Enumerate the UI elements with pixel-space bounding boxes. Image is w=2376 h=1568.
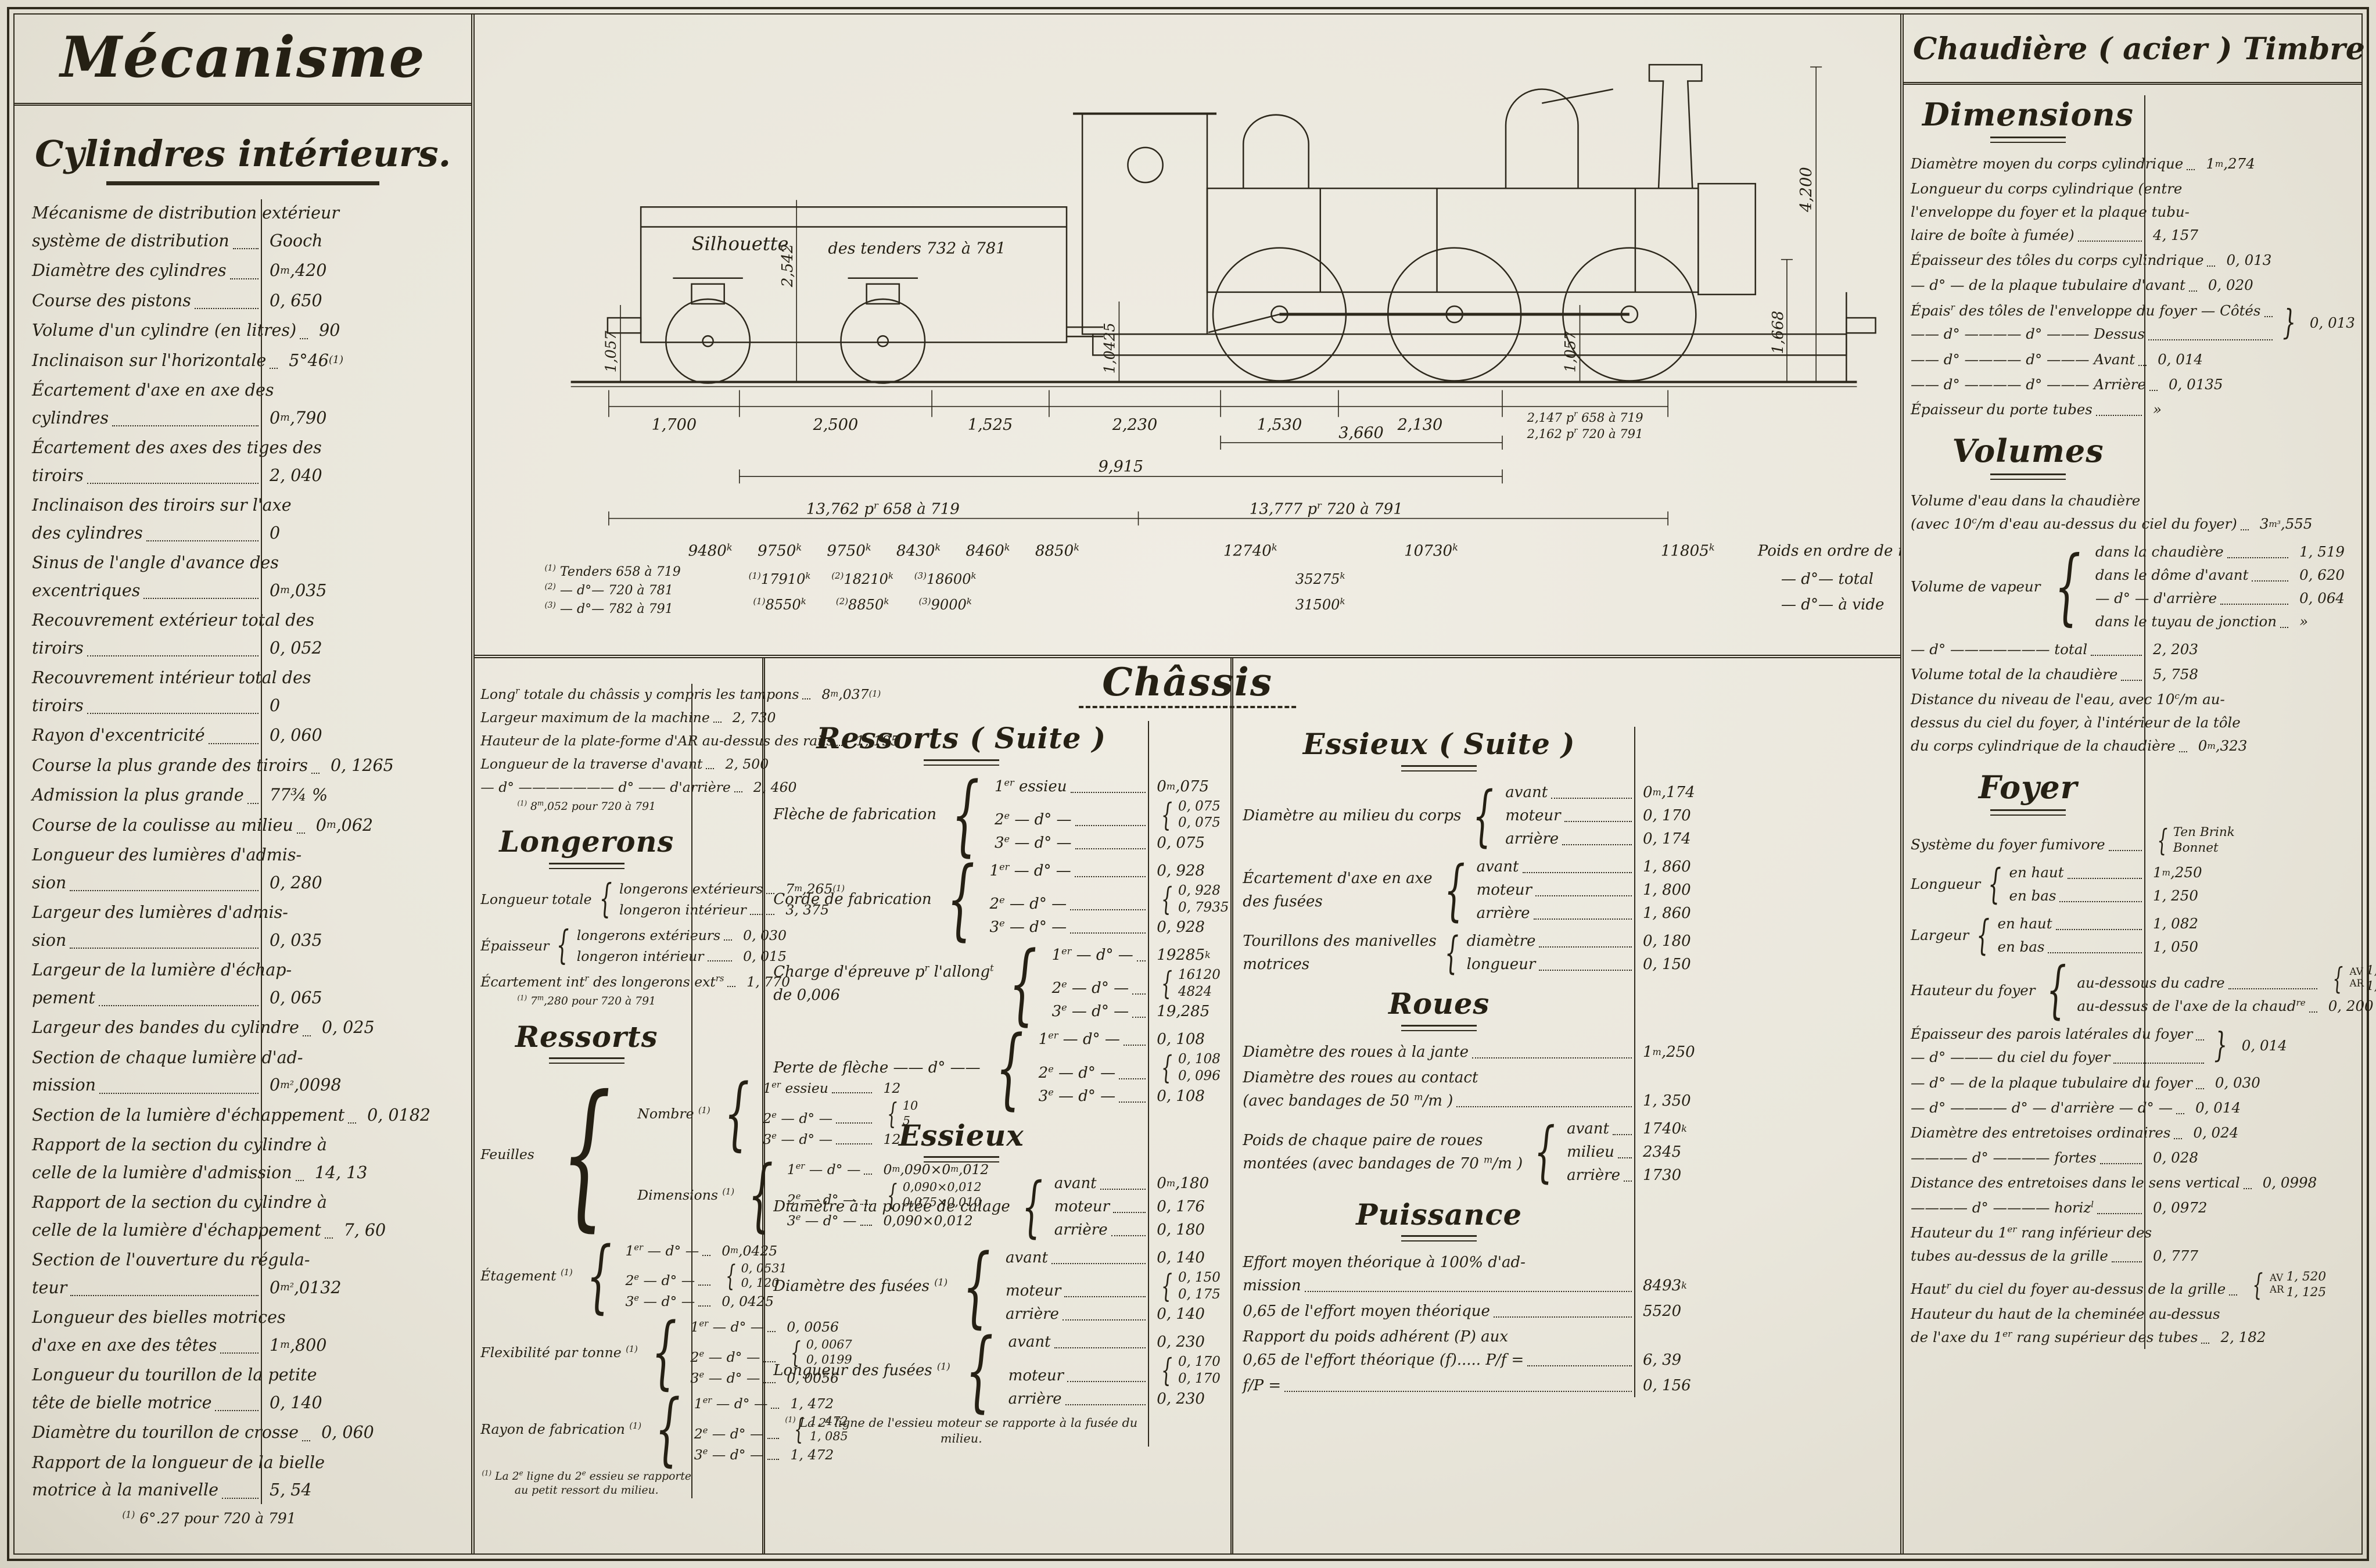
- spec-subrow: diamètre0, 180: [1467, 930, 1705, 953]
- spec-value: 0, 150: [1635, 953, 1705, 976]
- locomotive-drawing: Silhouettedes tenders 732 à 7812,5424,20…: [475, 15, 1900, 655]
- spec-value: 2, 203: [2145, 638, 2208, 661]
- spec-row: Largeur de la lumière d'échap-pement0, 0…: [32, 956, 332, 1011]
- spec-value: 0m,035: [262, 577, 332, 605]
- spec-sublabel: avant: [1008, 1330, 1051, 1354]
- spec-value: 1, 519: [2292, 540, 2355, 564]
- spec-value: 0, 180: [1149, 1218, 1226, 1242]
- spec-row: Longueur du corps cylindrique (entrel'en…: [1911, 177, 2208, 247]
- spec-row: Longueur du tourillon de la petitetête d…: [32, 1361, 332, 1416]
- spec-label: sion: [32, 927, 66, 955]
- drawing-labels: Silhouettedes tenders 732 à 7812,5424,20…: [545, 167, 1900, 616]
- loco-chimney: [1649, 64, 1702, 188]
- spec-value: 0, 620: [2292, 564, 2355, 587]
- leader-dots: [1064, 1296, 1146, 1297]
- value-line: 1, 320: [2366, 979, 2376, 995]
- weight: 8460k​: [966, 542, 1010, 560]
- spec-value: 0, 064: [2292, 587, 2355, 610]
- leader-dots: [70, 1295, 259, 1296]
- spec-value: 0: [262, 692, 332, 720]
- leader-dots: [1065, 1404, 1146, 1405]
- spec-label-line: Hauteur du haut de la cheminée au-dessus: [1911, 1303, 2208, 1326]
- section-header: Puissance: [1243, 1197, 1635, 1233]
- dim-chain-1: 1,700: [652, 416, 697, 434]
- spec-subrow: arrière0, 140: [1006, 1303, 1226, 1326]
- spec-value: 0, 013: [2302, 314, 2365, 331]
- spec-row: Rapport de la section du cylindre àcelle…: [32, 1131, 332, 1186]
- value-stack: 0, 1700, 170: [1178, 1354, 1221, 1387]
- spec-row: Largeur des lumières d'admis-sion0, 035: [32, 899, 332, 954]
- spec-group: Hauteur du foyer{au-dessous du cadre{AVA…: [1911, 963, 2208, 1018]
- brace-icon: {: [996, 1031, 1024, 1105]
- spec-label: d'axe en axe des têtes: [32, 1332, 217, 1359]
- leader-dots: [1071, 792, 1146, 793]
- spec-label: — d° — de la plaque tubulaire du foyer: [1911, 1071, 2192, 1095]
- brace-icon: {: [1161, 969, 1172, 998]
- section-header-wrap: Essieux: [773, 1118, 1149, 1163]
- weight: (3)​18600k​: [914, 570, 977, 587]
- spec-label: système de distribution: [32, 227, 229, 255]
- leader-dots: [1472, 1057, 1632, 1059]
- spec-value: 2, 040: [262, 462, 332, 490]
- leader-dots: [2091, 655, 2142, 656]
- spec-label: celle de la lumière d'admission: [32, 1159, 292, 1187]
- leader-dots: [143, 598, 259, 599]
- brace-icon: {: [1989, 867, 2002, 902]
- spec-value: {0, 1500, 175: [1149, 1269, 1226, 1303]
- spec-sublabel: 2e — d° —: [995, 808, 1072, 831]
- spec-label: Course des pistons: [32, 287, 191, 315]
- leader-dots: [713, 722, 722, 723]
- spec-value: {0, 1080, 096: [1149, 1051, 1226, 1084]
- legend-line: (2)​ — d°— 720 à 781: [545, 582, 673, 598]
- dim-chain-6: 2,130: [1397, 416, 1443, 434]
- spec-value: 1, 472: [783, 1444, 850, 1465]
- spec-subrow: avant1, 860: [1477, 855, 1705, 878]
- weight: 9750k​: [827, 542, 871, 560]
- spec-value: 19,285: [1149, 1000, 1226, 1023]
- leader-dots: [1111, 1235, 1146, 1236]
- leader-dots: [99, 1093, 259, 1094]
- brace-icon: {: [1161, 885, 1172, 913]
- section-header-wrap: Dimensions: [1911, 95, 2145, 143]
- spec-label: teur: [32, 1274, 67, 1302]
- spec-value: 8493k: [1635, 1274, 1705, 1297]
- spec-sublabel: en bas: [1997, 935, 2044, 959]
- spec-label-line: Longueur des lumières d'admis-: [32, 841, 332, 869]
- brace-icon: {: [1161, 1356, 1172, 1384]
- spec-subrow: avant0, 140: [1006, 1246, 1226, 1269]
- value-stack: 0, 1500, 175: [1178, 1269, 1221, 1303]
- leader-dots: [2149, 390, 2158, 391]
- value-tag: AR: [2270, 1284, 2284, 1296]
- brace-icon: {: [599, 882, 612, 916]
- spec-label-line: Recouvrement extérieur total des: [32, 607, 332, 634]
- leader-dots: [706, 768, 714, 769]
- weight: (2)​18210k​: [832, 570, 894, 587]
- spec-subrow: moteur{0, 1500, 175: [1006, 1269, 1226, 1303]
- spec-label: Système du foyer fumivore: [1911, 833, 2105, 856]
- spec-row: Recouvrement extérieur total destiroirs0…: [32, 607, 332, 662]
- spec-value: 0, 928: [1149, 859, 1226, 882]
- spec-group-label: Corde de fabrication: [773, 888, 931, 911]
- value-line: 0, 928: [1178, 882, 1229, 899]
- spec-value: 0, 030: [2208, 1071, 2270, 1095]
- spec-sublabel: moteur: [1008, 1364, 1064, 1387]
- spec-value: 0, 060: [314, 1419, 383, 1447]
- spec-sublabel: — d° — d'arrière: [2095, 587, 2217, 610]
- spec-group-label: Dimensions (1): [637, 1185, 734, 1205]
- leader-dots: [2196, 1088, 2204, 1089]
- spec-row: Inclinaison sur l'horizontale5°46 (1): [32, 347, 332, 375]
- spec-subrow: milieu2345: [1567, 1140, 1705, 1164]
- leader-dots: [1624, 1181, 1632, 1182]
- spec-row: — d° ——————— total2, 203: [1911, 638, 2208, 661]
- spec-label: tiroirs: [32, 634, 84, 662]
- panel-chaudiere: Chaudière ( acier ) Timbre 10.kilos Dime…: [1904, 15, 2361, 1553]
- leader-dots: [1564, 821, 1632, 822]
- weight: 11805k​: [1661, 542, 1715, 560]
- spec-group-label: Flèche de fabrication: [773, 803, 936, 826]
- leader-dots: [1119, 1078, 1146, 1079]
- spec-label: celle de la lumière d'échappement: [32, 1217, 321, 1244]
- spec-group-label: Perte de flèche —— d° ——: [773, 1056, 980, 1079]
- dim-chain-7a: 2,147 pr​ 658 à 719: [1527, 410, 1643, 425]
- spec-sublabel: 3e — d° —: [1052, 1000, 1129, 1023]
- spec-label: —— d° ———— d° ——— Arrière: [1911, 373, 2146, 396]
- leader-dots: [767, 1459, 780, 1460]
- chaudiere-title-text: Chaudière ( acier ) Timbre 10.: [1913, 31, 2376, 67]
- spec-label: Épaisseur des tôles du corps cylindrique: [1911, 249, 2203, 272]
- spec-label: motrice à la manivelle: [32, 1476, 218, 1504]
- spec-label: Section de la lumière d'échappement: [32, 1101, 344, 1129]
- value-stack: 0, 0750, 075: [1178, 798, 1221, 831]
- spec-row: Écartement d'axe en axe descylindres0m,7…: [32, 376, 332, 432]
- spec-row: Épaisseur des tôles du corps cylindrique…: [1911, 249, 2208, 272]
- leader-dots: [2252, 580, 2288, 582]
- weight: 9480k​: [688, 542, 733, 560]
- brace-icon: {: [1009, 946, 1037, 1021]
- spec-value: 0, 140: [1149, 1303, 1226, 1326]
- spec-group-label: Charge d'épreuve pr l'allongtde 0,006: [773, 960, 993, 1007]
- leader-dots: [2229, 1294, 2237, 1296]
- spec-label: (avec bandages de 50 m/m ): [1243, 1089, 1453, 1113]
- spec-value: 0m,174: [1635, 781, 1705, 804]
- spec-subrow: arrière0, 180: [1054, 1218, 1226, 1242]
- leader-dots: [750, 914, 775, 915]
- spec-value: 0m,075: [1149, 775, 1226, 798]
- value-stack: Ten BrinkBonnet: [2173, 825, 2235, 856]
- spec-row: 0,65 de l'effort moyen théorique5520: [1243, 1300, 1705, 1323]
- spec-value: 0, 176: [1149, 1195, 1226, 1218]
- spec-sublabel: 1er — d° —: [694, 1393, 768, 1414]
- spec-value: 0, 060: [262, 722, 332, 749]
- spec-row: Diamètre des entretoises ordinaires0, 02…: [1911, 1121, 2208, 1144]
- spec-group: Tourillons des manivellesmotrices{diamèt…: [1243, 930, 1705, 976]
- brace-icon: {: [652, 1319, 677, 1386]
- weight: (2)​8850k​: [836, 596, 889, 613]
- leader-dots: [70, 890, 259, 891]
- spec-sublabel: 3e — d° —: [691, 1368, 760, 1388]
- weights-row-label: — d°— à vide: [1781, 596, 1885, 613]
- spec-row: Section de chaque lumière d'ad-mission0m…: [32, 1044, 332, 1099]
- spec-value: 0, 230: [1149, 1387, 1226, 1411]
- section-header-wrap: Volumes: [1911, 432, 2145, 479]
- leader-dots: [1523, 872, 1632, 873]
- leader-dots: [311, 773, 320, 774]
- footnote: (1) 7m,280 pour 720 à 791: [480, 995, 692, 1009]
- spec-row: Diamètre des cylindres0m,420: [32, 257, 332, 285]
- leader-dots: [303, 1035, 311, 1036]
- weight: 10730k​: [1404, 542, 1458, 560]
- spec-label-line: dessus du ciel du foyer, à l'intérieur d…: [1911, 711, 2208, 734]
- spec-value: 3m³,555: [2252, 512, 2315, 536]
- leader-dots: [2148, 339, 2273, 340]
- spec-sheet-page: Mécanisme Cylindres intérieurs. Mécanism…: [0, 0, 2376, 1568]
- spec-sublabel: moteur: [1054, 1195, 1110, 1218]
- spec-subrow: arrière1730: [1567, 1164, 1705, 1187]
- leader-dots: [727, 986, 735, 987]
- spec-group: Largeur{en haut1, 082en bas1, 050: [1911, 912, 2208, 959]
- leader-dots: [698, 1284, 710, 1286]
- leader-dots: [209, 743, 259, 744]
- leader-dots: [734, 791, 742, 792]
- spec-value: »: [2145, 398, 2208, 421]
- section-header-wrap: Ressorts: [480, 1020, 692, 1064]
- spec-group: Longueur des fusées (1){avant0, 230moteu…: [773, 1330, 1226, 1410]
- section-header: Foyer: [1911, 768, 2145, 807]
- spec-value: 0m,180: [1149, 1172, 1226, 1195]
- spec-group-label: Volume de vapeur: [1911, 575, 2040, 598]
- section-header: Volumes: [1911, 432, 2145, 471]
- loco-dome-ar: [1244, 115, 1309, 188]
- spec-value: 90: [311, 317, 381, 345]
- spec-label: — d° ——————— d° —— d'arrière: [480, 777, 730, 798]
- dim-tender-height: 2,542: [779, 243, 796, 288]
- section-header: Ressorts: [480, 1020, 692, 1056]
- leader-dots: [1284, 1391, 1632, 1392]
- spec-value: 0, 0425: [714, 1291, 781, 1312]
- spec-row: Diamètre du tourillon de crosse0, 060: [32, 1419, 332, 1447]
- spec-sublabel: 2e — d° —: [694, 1423, 764, 1444]
- leader-dots: [297, 833, 305, 834]
- spec-sublabel: 2e — d° —: [625, 1270, 695, 1291]
- brace-icon: {: [655, 1395, 680, 1463]
- spec-label-line: Écartement d'axe en axe des: [32, 376, 332, 404]
- spec-label-line: Longueur du corps cylindrique (entre: [1911, 177, 2208, 200]
- spec-row: Largeur maximum de la machine2, 730: [480, 707, 760, 728]
- spec-sublabel: en bas: [2009, 884, 2056, 907]
- leader-dots: [2048, 952, 2142, 953]
- spec-row: Écartement intr des longerons extrs1, 77…: [480, 971, 760, 992]
- section-header: Ressorts ( Suite ): [773, 721, 1149, 757]
- spec-row: Hauteur de la plate-forme d'AR au-dessus…: [480, 730, 760, 751]
- spec-subrow: 1er essieu0m,075: [995, 775, 1226, 798]
- spec-value: 0, 174: [1635, 827, 1705, 851]
- spec-value: 2345: [1635, 1140, 1705, 1164]
- subtitle-cylindres: Cylindres intérieurs.: [15, 136, 471, 172]
- spec-row: Mécanisme de distribution extérieursystè…: [32, 199, 332, 254]
- leader-dots: [2179, 751, 2187, 752]
- spec-label: (avec 10c/m d'eau au-dessus du ciel du f…: [1911, 512, 2237, 536]
- spec-group-label: Épaisseur: [480, 935, 549, 956]
- spec-label: pement: [32, 984, 95, 1012]
- leader-dots: [70, 948, 259, 949]
- leader-dots: [1070, 909, 1146, 910]
- leader-dots: [2112, 1261, 2142, 1262]
- leader-dots: [1534, 918, 1632, 920]
- spec-sublabel: moteur: [1477, 878, 1532, 902]
- spec-sublabel: 1er — d° —: [1039, 1028, 1120, 1051]
- spec-label-line: Longueur du tourillon de la petite: [32, 1361, 332, 1389]
- brace-icon: {: [1473, 788, 1494, 844]
- spec-label: ———— d° ———— fortes: [1911, 1146, 2097, 1169]
- spec-label: Longueur de la traverse d'avant: [480, 753, 702, 774]
- value-line: 0, 170: [1178, 1354, 1221, 1370]
- spec-value: 1, 250: [2145, 884, 2208, 907]
- spec-label: Rayon d'excentricité: [32, 722, 205, 749]
- spec-label-line: Effort moyen théorique à 100% d'ad-: [1243, 1251, 1705, 1274]
- spec-row: Système du foyer fumivore{Ten BrinkBonne…: [1911, 825, 2208, 856]
- spec-row: Hauteur du 1er rang inférieur destubes a…: [1911, 1221, 2208, 1268]
- section-header-rule: [1990, 809, 2066, 816]
- spec-label: tête de bielle motrice: [32, 1389, 211, 1417]
- spec-label: mission: [1243, 1274, 1301, 1297]
- spec-group: Flexibilité par tonne (1){1er — d° —0, 0…: [480, 1316, 760, 1388]
- spec-value: 0: [262, 519, 332, 547]
- chaudiere-rows: DimensionsDiamètre moyen du corps cylind…: [1911, 95, 2208, 1349]
- spec-value: 0, 777: [2145, 1244, 2208, 1268]
- spec-sublabel: longueur: [1467, 953, 1536, 976]
- leader-dots: [1494, 1316, 1632, 1318]
- spec-sublabel: dans le dôme d'avant: [2095, 564, 2249, 587]
- leader-dots: [1613, 1134, 1632, 1135]
- spec-group: Diamètre au milieu du corps{avant0m,174m…: [1243, 781, 1705, 851]
- leader-dots: [1075, 876, 1146, 877]
- dim-height-center: 1,0425: [1101, 322, 1118, 374]
- leader-dots: [1551, 798, 1632, 799]
- spec-label: 0,65 de l'effort moyen théorique: [1243, 1300, 1490, 1323]
- brace-icon: {: [1977, 918, 1990, 953]
- spec-subrow: au-dessous du cadre{AVAR1, 6101, 320: [2077, 963, 2376, 995]
- brace-icon: {: [963, 1249, 990, 1323]
- spec-label: Hautr du ciel du foyer au-dessus de la g…: [1911, 1278, 2226, 1301]
- spec-value: 8m,037(1): [814, 684, 881, 705]
- spec-sublabel: 1er — d° —: [990, 859, 1071, 882]
- spec-row: Diamètre des roues à la jante1m,250: [1243, 1040, 1705, 1064]
- spec-label: Largeur des bandes du cylindre: [32, 1014, 299, 1042]
- leader-dots: [146, 540, 259, 541]
- leader-dots: [222, 1498, 259, 1499]
- leader-dots: [230, 278, 259, 279]
- leader-dots: [2078, 241, 2142, 242]
- dim-total-658-719: 13,762 pr​ 658 à 719: [806, 500, 960, 518]
- leader-dots: [1119, 1101, 1146, 1103]
- spec-sublabel: arrière: [1477, 902, 1530, 925]
- spec-row: Distance des entretoises dans le sens ve…: [1911, 1171, 2208, 1194]
- leader-dots: [296, 1180, 304, 1181]
- chassis-section: Châssis Longr totale du châssis y compri…: [475, 655, 1900, 1553]
- spec-value: 1m,250: [1635, 1040, 1705, 1064]
- spec-value: 0m,323: [2191, 734, 2253, 758]
- spec-value: 0, 0135: [2161, 373, 2224, 396]
- spec-row: — d° — de la plaque tubulaire d'avant0, …: [1911, 274, 2208, 297]
- spec-subrow: 3e — d° —0, 0425: [625, 1291, 781, 1312]
- dim-total-720-791: 13,777 pr​ 720 à 791: [1250, 500, 1403, 518]
- spec-label-line: Hauteur du 1er rang inférieur des: [1911, 1221, 2208, 1244]
- spec-group: Longueur totale{longerons extérieurs7m,2…: [480, 878, 760, 920]
- spec-label: cylindres: [32, 404, 109, 432]
- legend-line: (3)​ — d°— 782 à 791: [545, 601, 673, 616]
- spec-subrow: — d° — d'arrière0, 064: [2095, 587, 2355, 610]
- spec-group-label: Poids de chaque paire de rouesmontées (a…: [1243, 1129, 1523, 1175]
- spec-label-line: Écartement des axes des tiges des: [32, 434, 332, 462]
- spec-braced-pair: Épaisseur des parois latérales du foyer—…: [1911, 1022, 2208, 1069]
- brace-icon: {: [2055, 551, 2081, 622]
- leader-dots: [87, 483, 259, 484]
- spec-sublabel: avant: [1006, 1246, 1048, 1269]
- brace-icon: {: [586, 1243, 611, 1310]
- section-header-wrap: Foyer: [1911, 768, 2145, 816]
- spec-subrow: au-dessus de l'axe de la chaudre0, 200: [2077, 995, 2376, 1018]
- spec-group: Flèche de fabrication{1er essieu0m,0752e…: [773, 775, 1226, 855]
- spec-row: Sinus de l'angle d'avance desexcentrique…: [32, 549, 332, 604]
- dim-chain-5: 1,530: [1257, 416, 1302, 434]
- leader-dots: [702, 1255, 710, 1256]
- spec-sublabel: arrière: [1505, 827, 1559, 851]
- spec-value: 0, 170: [1635, 804, 1705, 827]
- spec-value: {0, 0750, 075: [1149, 798, 1226, 831]
- value-line: 0, 096: [1178, 1068, 1221, 1085]
- spec-subrow: 3e — d° —0, 108: [1039, 1085, 1226, 1108]
- section-header-rule: [549, 863, 624, 869]
- leader-dots: [87, 655, 259, 656]
- spec-label: Volume total de la chaudière: [1911, 663, 2117, 686]
- subtitle-rule: [106, 181, 379, 185]
- brace-icon: {: [726, 1263, 735, 1289]
- leader-dots: [1075, 848, 1146, 849]
- spec-row: Volume d'eau dans la chaudière(avec 10c/…: [1911, 489, 2208, 536]
- spec-row: — d° — de la plaque tubulaire du foyer0,…: [1911, 1071, 2208, 1095]
- spec-sublabel: 2e — d° —: [1039, 1061, 1116, 1085]
- spec-group-label: Étagement (1): [480, 1265, 572, 1286]
- spec-group: Épaisseur{longerons extérieurs0, 030long…: [480, 925, 760, 967]
- value-tag: AV: [2270, 1272, 2284, 1284]
- dim-chain-2: 2,500: [813, 416, 859, 434]
- value-line: 16120: [1178, 967, 1221, 984]
- spec-row: Diamètre des roues au contact(avec banda…: [1243, 1066, 1705, 1113]
- spec-subrow: arrière0, 230: [1008, 1387, 1226, 1411]
- spec-group: Diamètre des fusées (1){avant0, 140moteu…: [773, 1246, 1226, 1326]
- weight: 9750k​: [758, 542, 802, 560]
- spec-value: {0, 9280, 7935: [1149, 882, 1226, 916]
- spec-value: 0, 156: [1635, 1374, 1705, 1397]
- leader-dots: [1054, 1347, 1146, 1348]
- spec-row: Volume d'un cylindre (en litres)90: [32, 317, 332, 345]
- section-header: Essieux: [773, 1118, 1149, 1154]
- spec-row: Volume total de la chaudière5, 758: [1911, 663, 2208, 686]
- spec-row: Admission la plus grande77¾ %: [32, 781, 332, 809]
- leader-dots: [87, 713, 259, 714]
- leader-dots: [724, 939, 732, 941]
- spec-value: 19285k: [1149, 943, 1226, 967]
- weight: 31500k​: [1295, 596, 1345, 613]
- leader-dots: [1063, 1319, 1146, 1321]
- spec-group: Volume de vapeur{dans la chaudière1, 519…: [1911, 540, 2208, 633]
- spec-subrow: 2e — d° —{0, 05310, 120: [625, 1261, 781, 1291]
- panel-mecanisme: Mécanisme Cylindres intérieurs. Mécanism…: [15, 15, 475, 1553]
- leader-dots: [348, 1122, 356, 1124]
